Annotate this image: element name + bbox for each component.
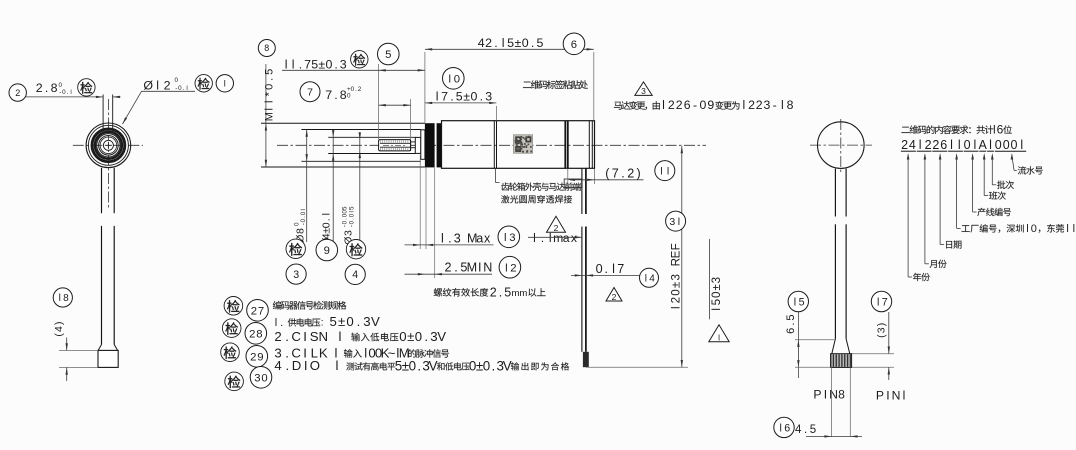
svg-text:9: 9 bbox=[324, 245, 330, 257]
svg-text:Øl2: Øl2 bbox=[143, 79, 170, 93]
svg-text:0: 0 bbox=[347, 92, 351, 99]
svg-text:7: 7 bbox=[307, 87, 313, 99]
svg-text:l4: l4 bbox=[645, 273, 656, 284]
svg-text::: : bbox=[321, 317, 324, 328]
svg-text:l226-09: l226-09 bbox=[662, 98, 714, 112]
svg-text:(3): (3) bbox=[876, 323, 888, 338]
svg-text:l6: l6 bbox=[780, 422, 791, 434]
svg-text:3: 3 bbox=[641, 86, 646, 96]
svg-text:-0.0l5: -0.0l5 bbox=[348, 206, 355, 227]
svg-text:(4): (4) bbox=[53, 322, 65, 337]
svg-text:l223-l8: l223-l8 bbox=[743, 98, 794, 112]
svg-text:Max: Max bbox=[467, 232, 491, 246]
svg-text:3l: 3l bbox=[669, 216, 680, 228]
svg-text:l8: l8 bbox=[59, 293, 70, 304]
svg-text:l: l bbox=[336, 358, 339, 373]
svg-text:l: l bbox=[339, 329, 342, 344]
svg-text:l0: l0 bbox=[1026, 223, 1037, 235]
svg-text:l0: l0 bbox=[449, 73, 460, 85]
svg-text:4: 4 bbox=[352, 269, 358, 281]
svg-text:3: 3 bbox=[293, 269, 299, 281]
svg-text:2.8: 2.8 bbox=[36, 81, 58, 95]
svg-text:REF: REF bbox=[670, 243, 683, 266]
svg-text:5: 5 bbox=[385, 49, 391, 61]
svg-text:7.8: 7.8 bbox=[325, 88, 347, 102]
svg-text:ll.75±0.3: ll.75±0.3 bbox=[285, 58, 347, 72]
svg-text:l7: l7 bbox=[877, 296, 888, 308]
svg-text:42.l5±0.5: 42.l5±0.5 bbox=[478, 36, 544, 50]
svg-text:6.5: 6.5 bbox=[785, 314, 797, 333]
svg-text:0: 0 bbox=[175, 77, 179, 84]
svg-text:6: 6 bbox=[571, 39, 577, 51]
svg-text:8: 8 bbox=[264, 43, 269, 53]
svg-text:mm: mm bbox=[512, 288, 528, 299]
svg-text:2: 2 bbox=[554, 223, 559, 233]
svg-text:PIN8: PIN8 bbox=[813, 388, 845, 402]
svg-text:2.5: 2.5 bbox=[490, 285, 512, 299]
svg-text:2: 2 bbox=[15, 88, 20, 98]
svg-text:27: 27 bbox=[251, 305, 264, 317]
svg-text:l: l bbox=[224, 79, 226, 89]
svg-text:l20±3: l20±3 bbox=[670, 274, 683, 309]
svg-text:l5: l5 bbox=[794, 296, 805, 308]
svg-text:4.DIO: 4.DIO bbox=[274, 358, 320, 373]
svg-text:l2: l2 bbox=[505, 262, 516, 274]
svg-text:-0.l: -0.l bbox=[175, 85, 188, 92]
svg-text:30: 30 bbox=[254, 372, 267, 384]
svg-text:l6: l6 bbox=[993, 122, 1004, 136]
svg-text:29: 29 bbox=[250, 351, 263, 363]
svg-text:4.5: 4.5 bbox=[795, 424, 816, 436]
svg-text:l50±3: l50±3 bbox=[710, 277, 723, 311]
svg-text:l: l bbox=[718, 333, 720, 343]
svg-text:-0.l: -0.l bbox=[59, 89, 72, 96]
svg-text:2: 2 bbox=[612, 292, 617, 302]
svg-text:l3: l3 bbox=[504, 232, 515, 244]
svg-text:28: 28 bbox=[249, 328, 262, 340]
